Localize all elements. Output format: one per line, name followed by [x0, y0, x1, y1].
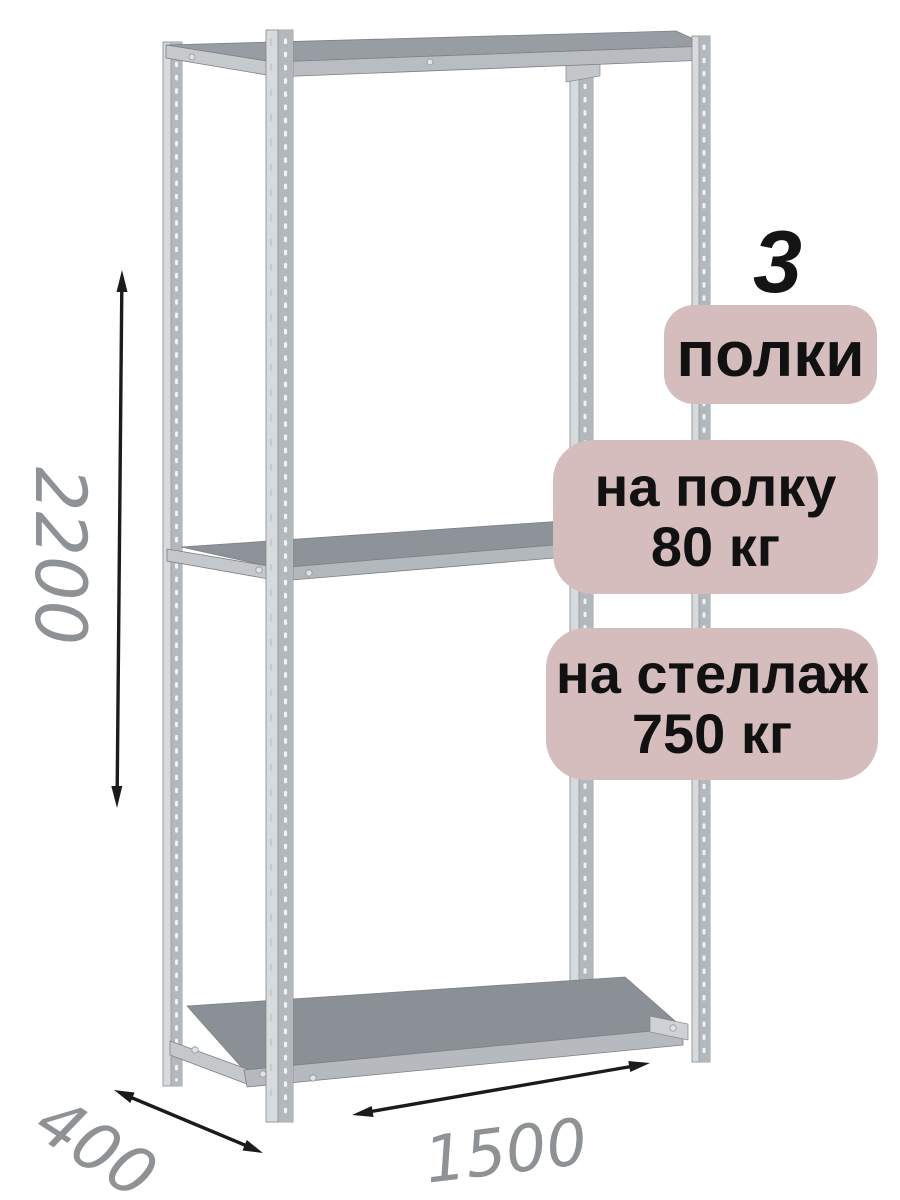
back-left-post: [163, 42, 182, 1086]
product-image: 2200 400 1500 3 полки на полку 80 кг на …: [0, 0, 900, 1200]
rack-load-badge: на стеллаж 750 кг: [546, 628, 878, 780]
top-shelf: [166, 31, 709, 77]
height-dimension-arrow: [111, 270, 127, 808]
shelf-count-label: полки: [676, 320, 864, 389]
shelf-load-value: 80 кг: [651, 517, 780, 577]
depth-dimension-label: 400: [22, 1081, 170, 1200]
shelf-load-text: на полку: [595, 457, 837, 517]
width-dimension-label: 1500: [421, 1105, 592, 1198]
rack-illustration: 2200 400 1500: [0, 0, 900, 1200]
rack-load-value: 750 кг: [632, 704, 792, 764]
shelf-count-badge: полки: [664, 305, 877, 404]
rack-load-text: на стеллаж: [556, 644, 868, 704]
shelf-count-number: 3: [730, 214, 825, 310]
height-dimension-label: 2200: [19, 467, 101, 645]
shelf-load-badge: на полку 80 кг: [553, 440, 878, 594]
front-left-post: [266, 30, 293, 1122]
